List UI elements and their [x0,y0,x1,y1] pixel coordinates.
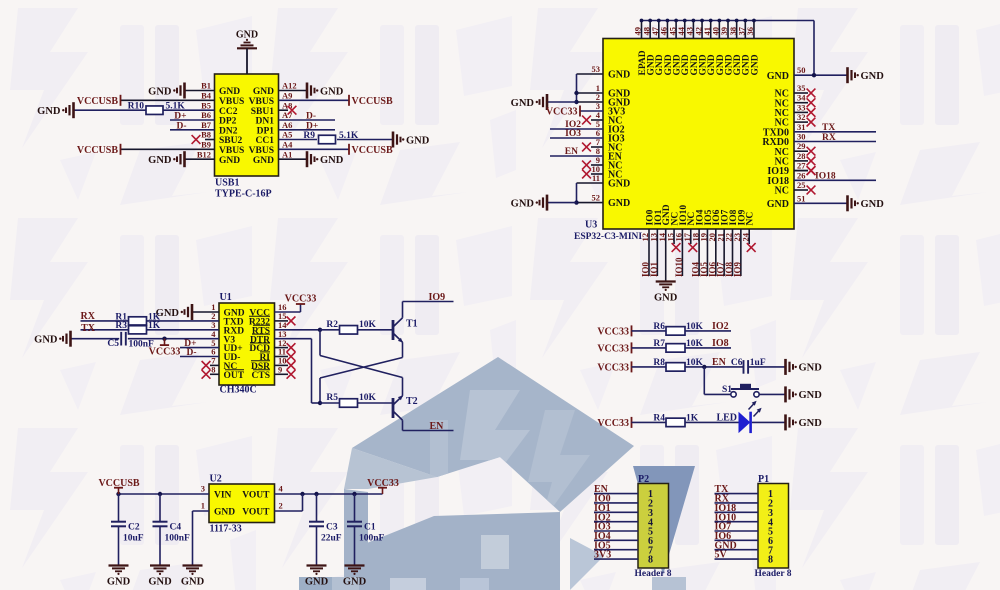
svg-text:A1: A1 [282,149,292,159]
svg-text:100nF: 100nF [359,534,385,544]
svg-text:OUT: OUT [224,371,245,381]
svg-text:GND: GND [219,87,240,97]
svg-text:R8: R8 [653,358,665,368]
svg-text:VIN: VIN [214,491,232,501]
svg-text:1117-33: 1117-33 [210,524,242,535]
svg-text:GND: GND [37,106,61,117]
svg-text:50: 50 [797,65,806,75]
svg-text:GND: GND [253,87,274,97]
svg-text:IO8: IO8 [712,338,729,349]
svg-text:SBU1: SBU1 [251,107,274,117]
svg-text:VOUT: VOUT [242,491,270,501]
svg-text:A4: A4 [282,140,293,150]
svg-text:U3: U3 [585,220,597,231]
svg-text:GND: GND [608,198,630,209]
svg-text:A6: A6 [282,120,292,130]
svg-text:2: 2 [279,501,283,511]
svg-text:8: 8 [648,555,653,566]
svg-text:GND: GND [148,577,172,588]
svg-text:R2: R2 [326,320,338,330]
svg-text:VBUS: VBUS [219,146,244,156]
svg-text:A5: A5 [282,130,292,140]
svg-text:29: 29 [797,141,806,151]
svg-text:CC2: CC2 [219,107,238,117]
svg-text:B1: B1 [201,81,211,91]
svg-text:NC: NC [775,186,789,197]
svg-text:22uF: 22uF [321,534,342,544]
svg-text:P2: P2 [638,474,649,485]
svg-text:P1: P1 [758,474,769,485]
svg-text:8: 8 [768,555,773,566]
svg-text:52: 52 [592,193,601,203]
svg-text:RX: RX [81,311,96,322]
svg-text:EN: EN [712,357,727,368]
svg-text:VCC33: VCC33 [546,107,578,118]
svg-text:D-: D- [176,121,186,131]
svg-text:27: 27 [797,161,806,171]
svg-text:R3: R3 [115,321,127,331]
svg-text:C1: C1 [364,523,376,533]
svg-text:33: 33 [797,102,806,112]
svg-text:DP2: DP2 [219,117,237,127]
svg-text:NC: NC [746,212,756,226]
svg-text:IO18: IO18 [815,172,836,182]
svg-text:GND: GND [608,70,630,81]
svg-text:IO1: IO1 [649,261,659,277]
svg-text:T2: T2 [406,396,418,407]
svg-text:R6: R6 [653,322,665,332]
svg-text:VCCUSB: VCCUSB [77,96,118,107]
svg-text:GND: GND [511,198,535,209]
svg-text:VBUS: VBUS [249,97,274,107]
svg-text:25: 25 [797,180,806,190]
svg-text:TYPE-C-16P: TYPE-C-16P [215,189,272,200]
svg-text:B5: B5 [201,100,211,110]
svg-text:34: 34 [797,93,806,103]
svg-text:EN: EN [565,147,578,157]
svg-text:CTS: CTS [252,371,270,381]
svg-text:VCCUSB: VCCUSB [352,96,393,107]
svg-text:SBU2: SBU2 [219,136,242,146]
svg-text:VCCUSB: VCCUSB [352,145,393,156]
svg-text:IO3: IO3 [565,129,581,139]
svg-text:LED: LED [716,412,737,423]
svg-text:TX: TX [81,323,96,334]
svg-text:GND: GND [750,54,760,75]
svg-text:U1: U1 [220,292,232,303]
svg-text:10uF: 10uF [123,534,144,544]
svg-text:VCC33: VCC33 [149,347,181,358]
svg-text:36: 36 [745,27,755,36]
svg-text:28: 28 [797,151,806,161]
svg-text:100nF: 100nF [165,534,191,544]
svg-text:GND: GND [253,156,274,166]
svg-text:C4: C4 [170,523,182,533]
svg-text:VCC33: VCC33 [285,294,317,305]
svg-text:CC1: CC1 [256,136,275,146]
svg-text:GND: GND [767,199,789,210]
svg-text:GND: GND [406,135,430,146]
svg-text:32: 32 [797,112,806,122]
svg-text:T1: T1 [406,319,418,330]
svg-text:TX: TX [822,123,835,133]
svg-text:1: 1 [201,501,205,511]
svg-text:VOUT: VOUT [242,508,270,518]
svg-text:VCC33: VCC33 [367,478,399,489]
svg-text:GND: GND [107,577,131,588]
svg-text:5.1K: 5.1K [339,131,359,141]
svg-text:35: 35 [797,83,806,93]
svg-text:DN2: DN2 [219,126,238,136]
svg-text:DN1: DN1 [256,117,275,127]
svg-text:GND: GND [799,390,823,401]
svg-text:EN: EN [430,421,445,432]
svg-text:1K: 1K [148,321,161,331]
svg-text:Header 8: Header 8 [634,569,671,579]
svg-text:GND: GND [343,577,367,588]
svg-text:10K: 10K [359,393,377,403]
svg-text:D+: D+ [174,112,186,122]
svg-text:R7: R7 [653,339,665,349]
svg-text:GND: GND [654,293,678,304]
svg-text:VCC33: VCC33 [597,418,629,429]
svg-text:B9: B9 [201,140,211,150]
svg-text:IO10: IO10 [674,257,684,277]
svg-text:IO9: IO9 [429,292,446,303]
svg-text:VCCUSB: VCCUSB [98,478,139,489]
svg-text:Header 8: Header 8 [754,569,791,579]
svg-text:GND: GND [148,86,172,97]
svg-text:D-: D- [186,348,196,358]
svg-text:GND: GND [219,156,240,166]
svg-text:3: 3 [201,484,205,494]
svg-text:DP1: DP1 [257,126,275,136]
svg-text:53: 53 [592,64,601,74]
svg-text:VCC33: VCC33 [597,363,629,374]
svg-text:C6: C6 [731,358,743,368]
svg-text:RX: RX [822,133,836,143]
svg-text:5V: 5V [715,550,728,561]
svg-text:R10: R10 [128,102,145,112]
svg-text:ESP32-C3-MINI: ESP32-C3-MINI [574,232,642,242]
svg-text:U2: U2 [210,474,222,485]
svg-text:S1: S1 [722,385,732,395]
svg-text:C5: C5 [107,339,119,349]
svg-text:USB1: USB1 [215,178,239,189]
svg-text:GND: GND [320,86,344,97]
svg-text:GND: GND [767,71,789,82]
svg-text:B7: B7 [201,120,212,130]
svg-text:GND: GND [214,508,235,518]
svg-text:VBUS: VBUS [219,97,244,107]
svg-text:VCC33: VCC33 [597,327,629,338]
svg-text:GND: GND [608,179,630,190]
svg-text:B4: B4 [201,91,212,101]
svg-text:VCCUSB: VCCUSB [77,145,118,156]
svg-text:GND: GND [861,71,885,82]
svg-text:CH340C: CH340C [220,385,257,396]
svg-text:VCC33: VCC33 [597,344,629,355]
svg-text:GND: GND [320,155,344,166]
svg-text:D+: D+ [306,121,318,131]
svg-text:C2: C2 [128,523,140,533]
svg-text:GND: GND [305,577,329,588]
svg-text:3V3: 3V3 [594,550,611,561]
svg-text:31: 31 [797,122,806,132]
svg-text:VBUS: VBUS [249,146,274,156]
svg-text:GND: GND [181,577,205,588]
svg-text:B8: B8 [201,130,211,140]
svg-text:IO9: IO9 [732,261,742,277]
svg-text:10K: 10K [359,320,377,330]
svg-text:R9: R9 [303,131,315,141]
svg-text:30: 30 [797,132,806,142]
svg-text:GND: GND [799,418,823,429]
svg-text:IO2: IO2 [712,321,729,332]
svg-text:GND: GND [236,29,258,40]
svg-text:GND: GND [861,199,885,210]
svg-text:R5: R5 [326,393,338,403]
svg-text:GND: GND [34,335,58,346]
svg-text:GND: GND [148,155,172,166]
svg-text:51: 51 [797,193,806,203]
svg-text:GND: GND [799,363,823,374]
svg-text:C3: C3 [326,523,338,533]
svg-text:D-: D- [306,112,316,122]
svg-text:A9: A9 [282,91,292,101]
svg-text:GND: GND [511,98,535,109]
svg-text:B12: B12 [197,149,211,159]
svg-text:B6: B6 [201,110,211,120]
svg-text:A12: A12 [282,81,297,91]
svg-text:5.1K: 5.1K [166,102,186,112]
svg-text:R4: R4 [653,413,665,423]
svg-text:26: 26 [797,170,806,180]
